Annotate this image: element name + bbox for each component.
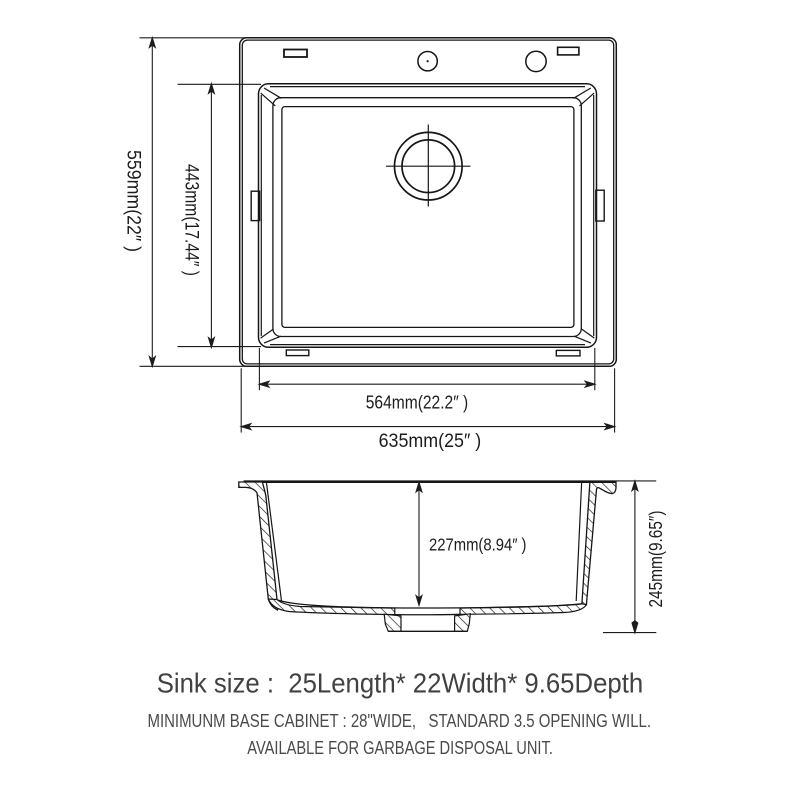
- svg-text:443mm(17.44″ ): 443mm(17.44″ ): [181, 164, 203, 276]
- svg-text:AVAILABLE FOR GARBAGE DISPOSAL: AVAILABLE FOR GARBAGE DISPOSAL UNIT.: [247, 737, 553, 758]
- svg-text:227mm(8.94″ ): 227mm(8.94″ ): [429, 534, 527, 554]
- svg-text:MINIMUNM BASE CABINET : 28"WID: MINIMUNM BASE CABINET : 28"WIDE, STANDAR…: [148, 710, 652, 731]
- svg-text:Sink size : 25Length* 22Width: Sink size : 25Length* 22Width* 9.65Depth: [157, 668, 644, 699]
- svg-text:635mm(25″ ): 635mm(25″ ): [379, 431, 482, 452]
- svg-text:245mm(9.65″): 245mm(9.65″): [646, 511, 667, 608]
- svg-text:559mm(22″ ): 559mm(22″ ): [123, 150, 145, 252]
- svg-text:564mm(22.2″ ): 564mm(22.2″ ): [366, 393, 469, 413]
